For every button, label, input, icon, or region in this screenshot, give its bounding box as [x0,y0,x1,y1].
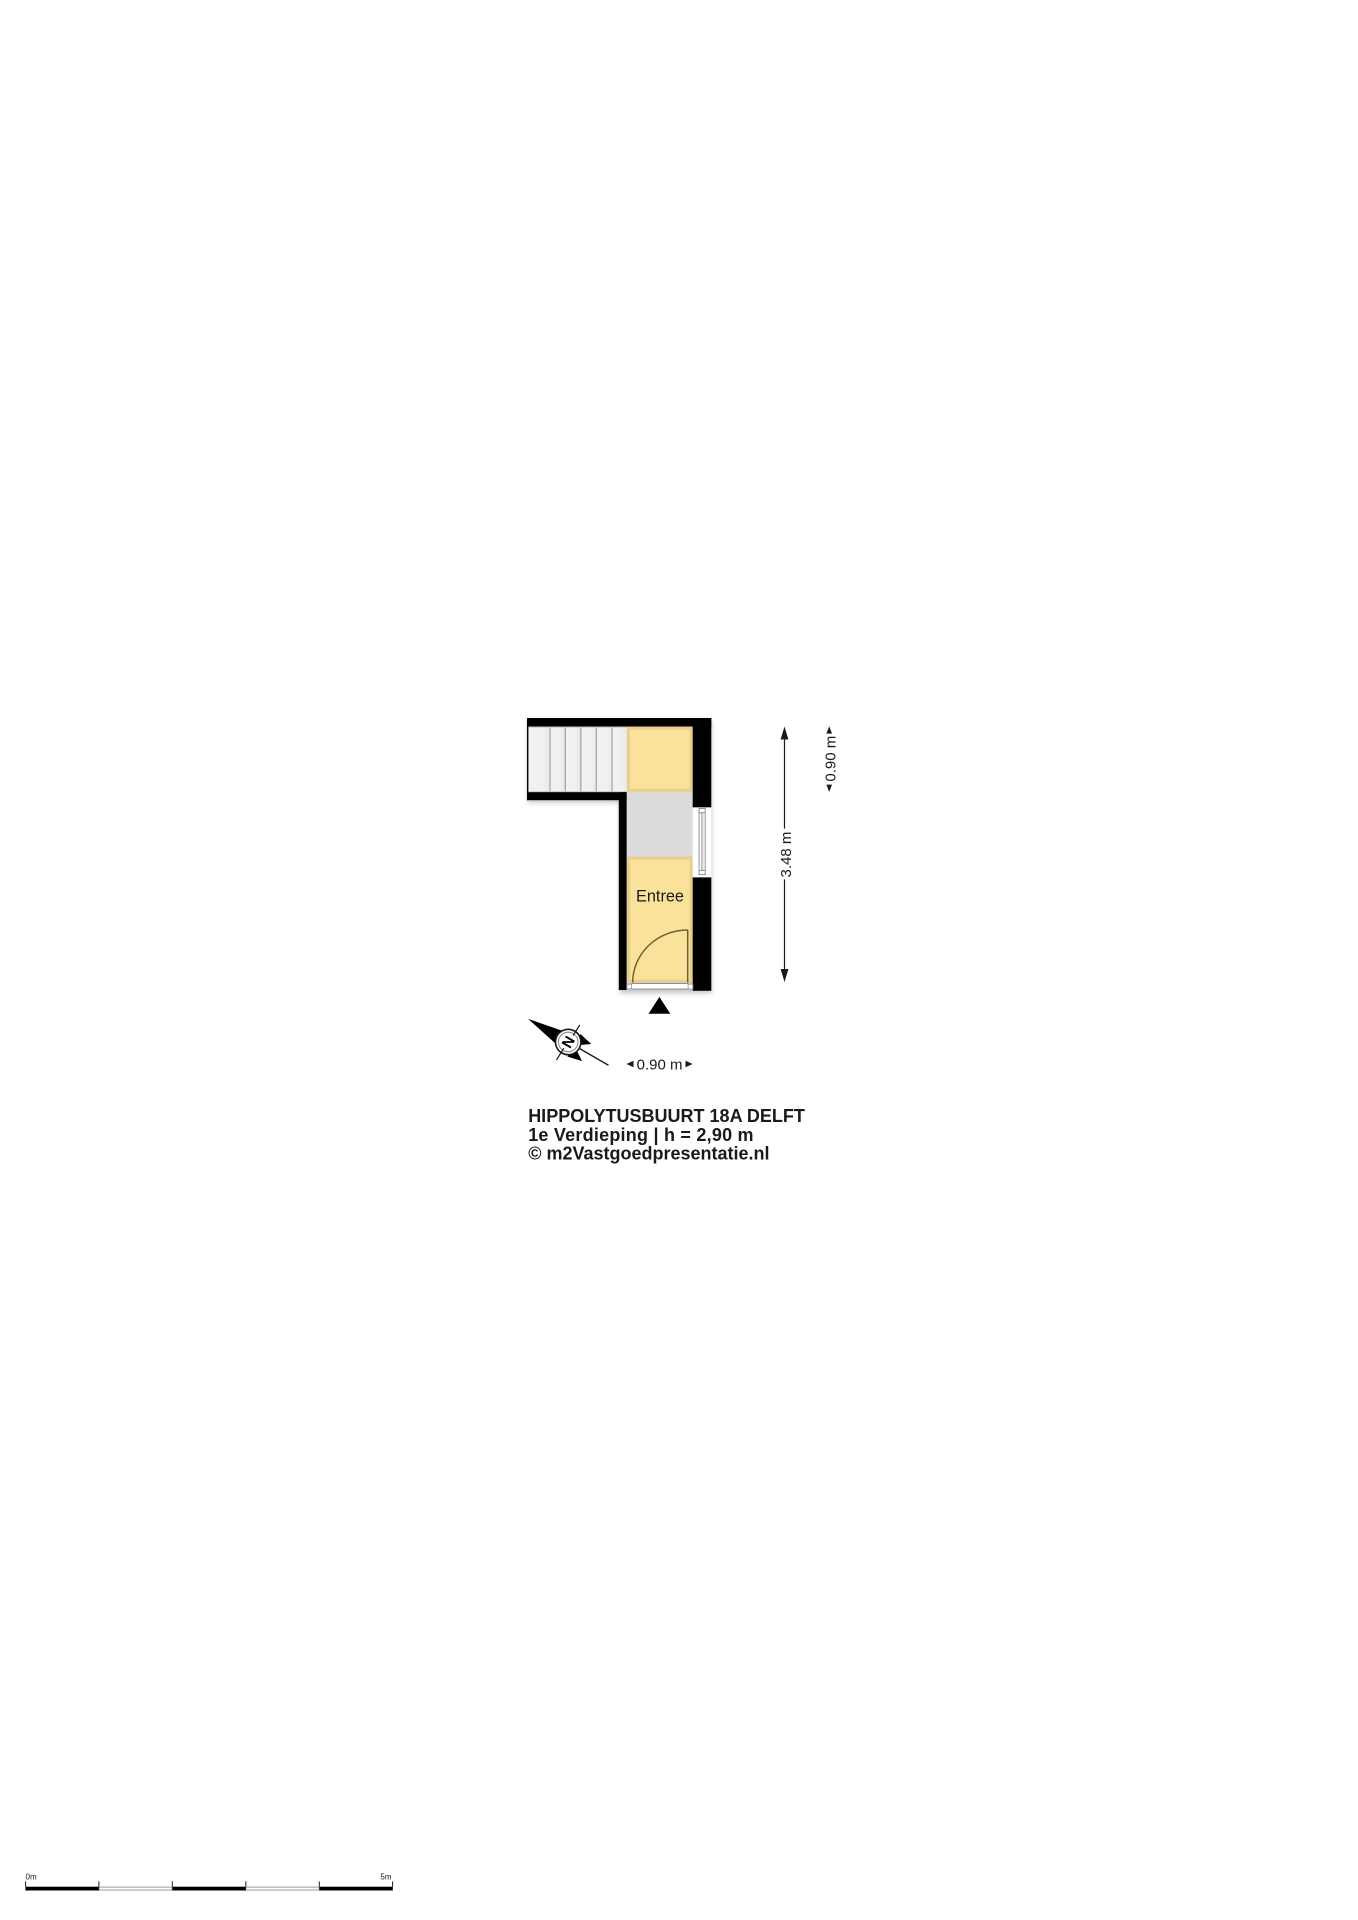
svg-text:Entree: Entree [636,888,684,906]
svg-text:0.90 m: 0.90 m [822,736,839,782]
svg-text:5m: 5m [380,1872,391,1881]
svg-text:3.48 m: 3.48 m [778,832,795,878]
svg-text:© m2Vastgoedpresentatie.nl: © m2Vastgoedpresentatie.nl [528,1144,769,1164]
svg-text:0.90 m: 0.90 m [637,1056,683,1073]
svg-text:HIPPOLYTUSBUURT 18A DELFT: HIPPOLYTUSBUURT 18A DELFT [528,1106,805,1126]
svg-text:0m: 0m [26,1872,37,1881]
svg-text:1e Verdieping | h = 2,90 m: 1e Verdieping | h = 2,90 m [528,1125,754,1145]
